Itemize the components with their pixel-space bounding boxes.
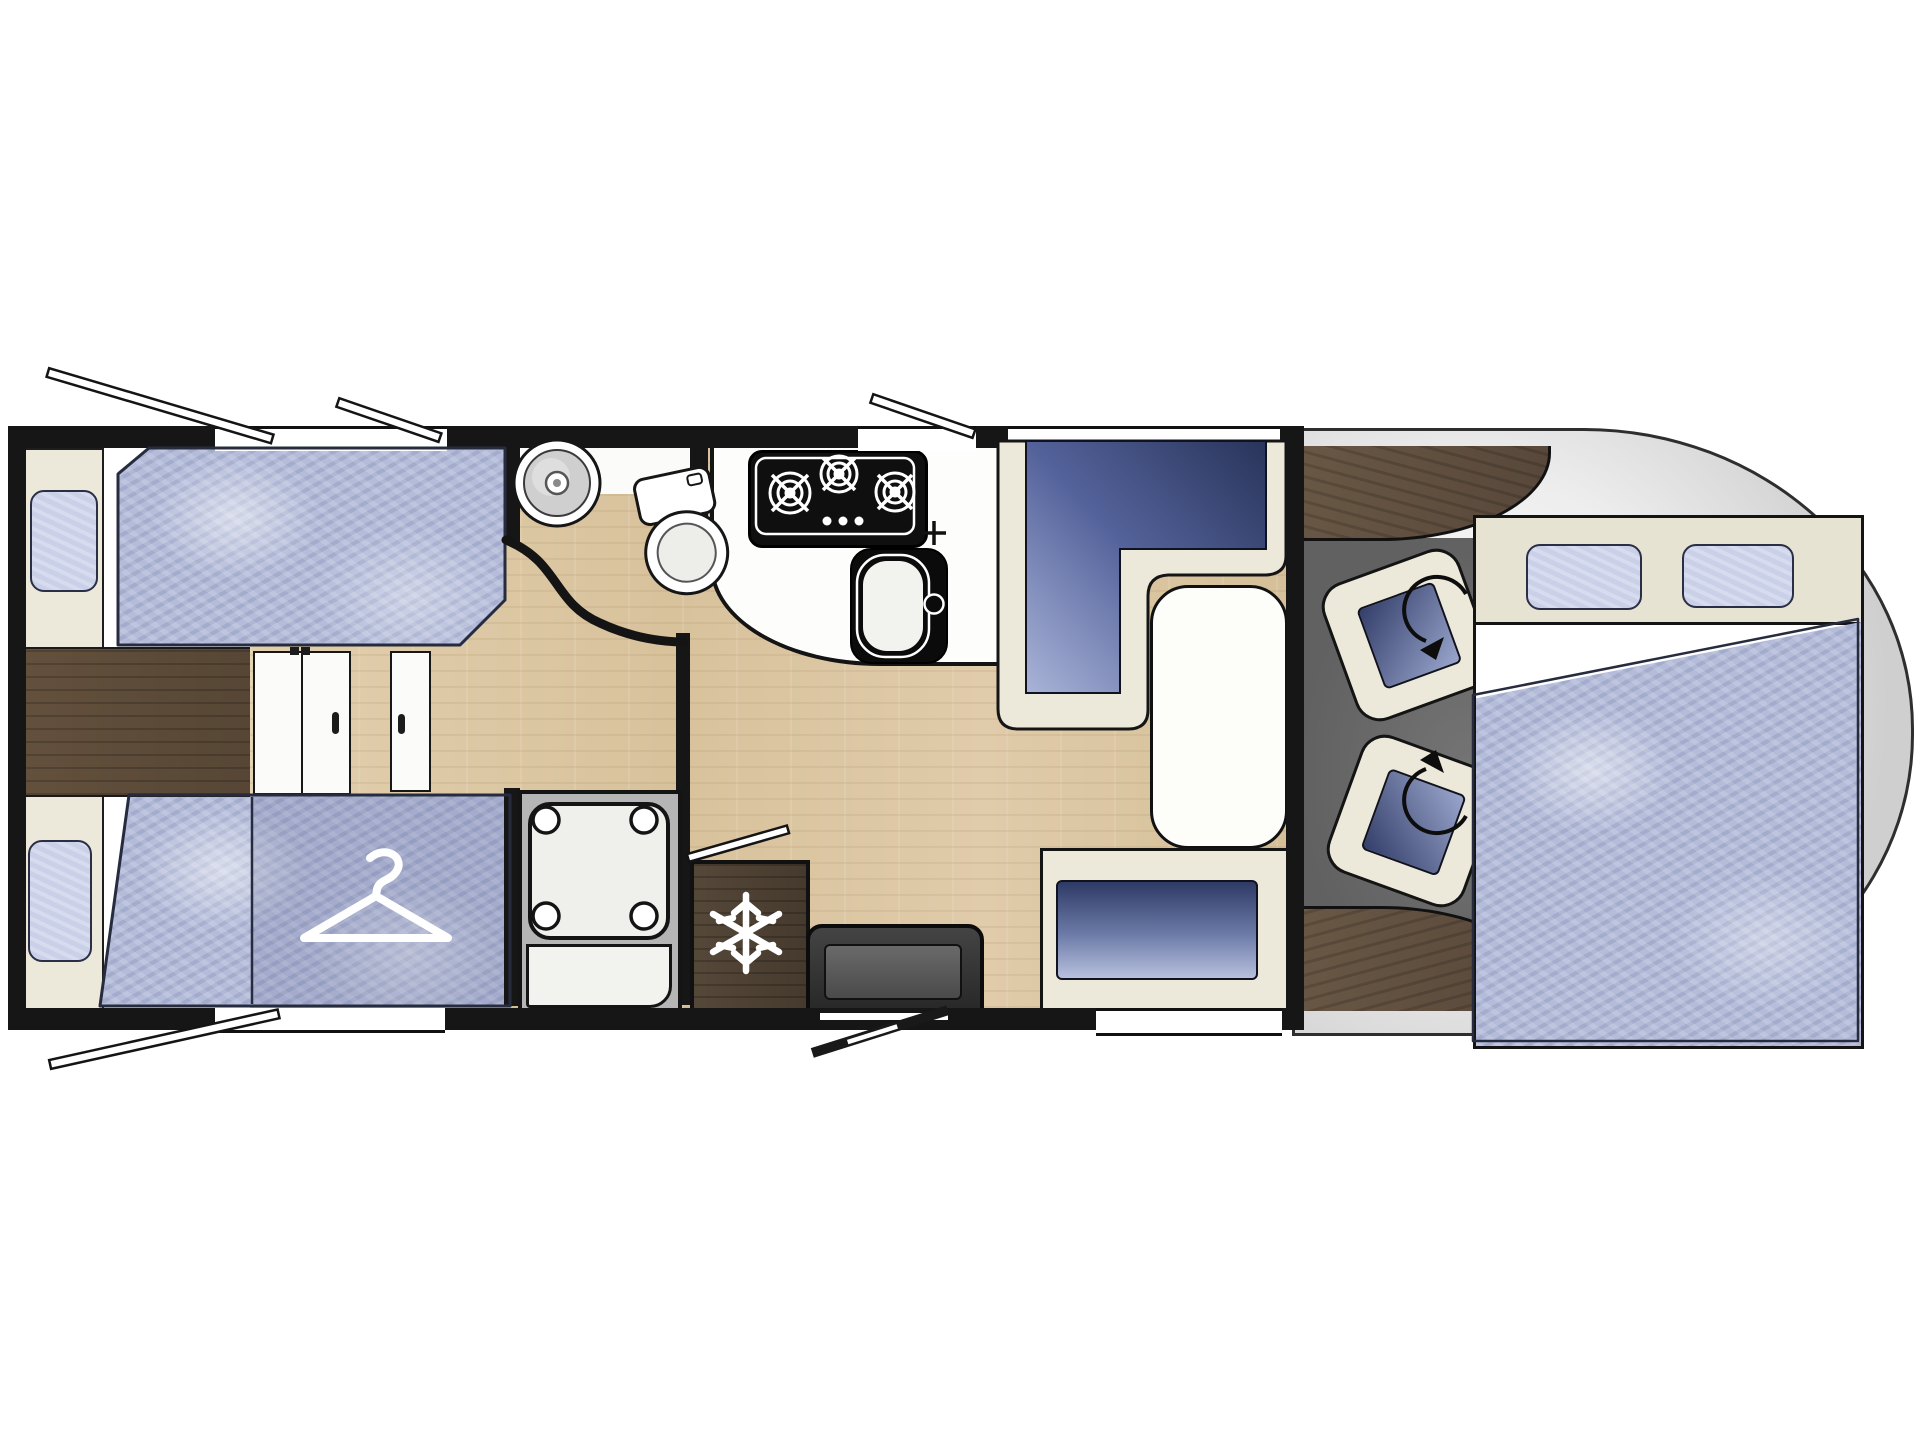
- sink-tap: [925, 595, 944, 614]
- burner-icon: [821, 456, 857, 492]
- rotation-arrow-icon: [1404, 577, 1466, 660]
- hanger-icon: [304, 852, 448, 938]
- door-swing-indicator: [811, 1005, 949, 1057]
- l-shaped-dinette-seat: [998, 441, 1286, 729]
- door-handles: [290, 647, 405, 734]
- burner-icon: [876, 473, 914, 511]
- toilet: [630, 465, 736, 601]
- snowflake-icon: [713, 895, 779, 971]
- faucet-cross-icon: [922, 521, 946, 545]
- shower-corner-posts: [533, 807, 657, 929]
- floorplan-canvas: [0, 0, 1920, 1440]
- hob-burners: [756, 456, 914, 534]
- burner-icon: [770, 473, 810, 513]
- rotation-arrow-icon: [1404, 750, 1466, 833]
- mattress-outlines: [100, 448, 1858, 1041]
- kitchen-sink: [851, 521, 947, 663]
- washbasin: [514, 440, 600, 526]
- linework-layer: [0, 0, 1920, 1440]
